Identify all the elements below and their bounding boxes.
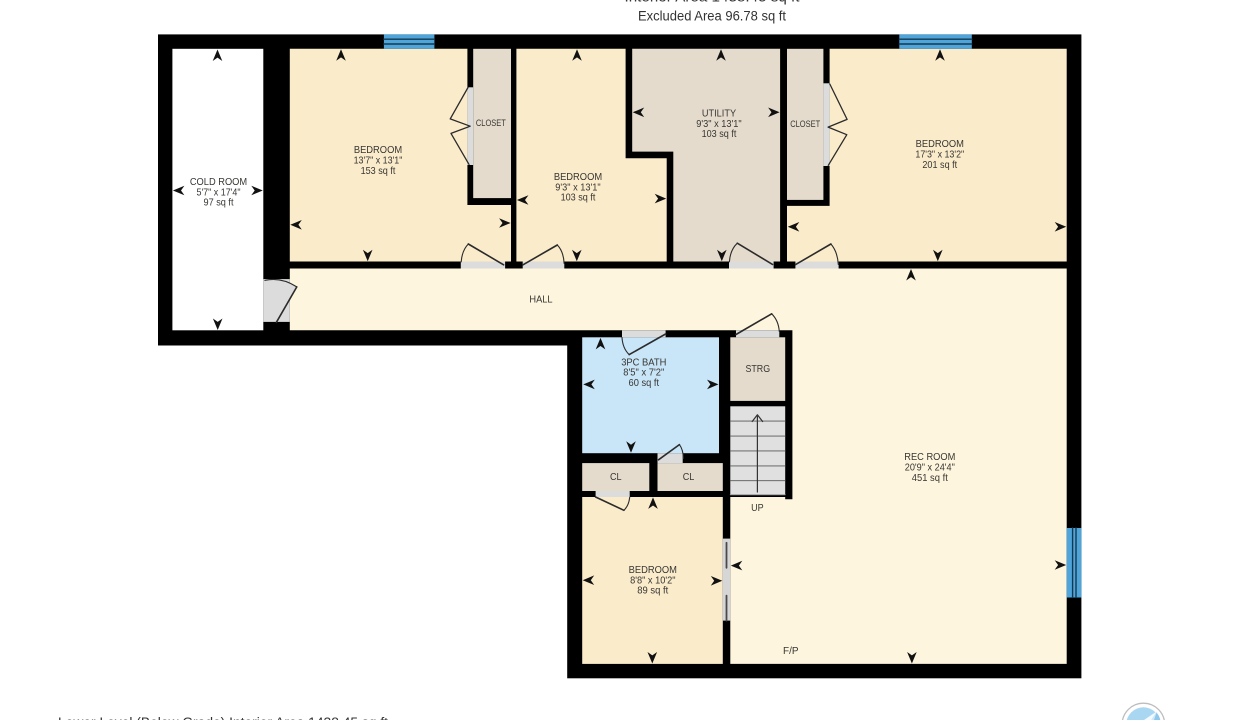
- svg-text:F/P: F/P: [783, 646, 799, 657]
- svg-text:BEDROOM: BEDROOM: [629, 565, 677, 576]
- svg-text:89 sq ft: 89 sq ft: [637, 586, 668, 597]
- svg-text:UP: UP: [751, 503, 764, 514]
- svg-text:REC ROOM: REC ROOM: [904, 452, 955, 463]
- svg-text:201 sq ft: 201 sq ft: [922, 160, 957, 171]
- svg-text:CLOSET: CLOSET: [476, 118, 506, 128]
- svg-text:20'9" x 24'4": 20'9" x 24'4": [905, 463, 955, 474]
- svg-text:UTILITY: UTILITY: [702, 108, 736, 119]
- svg-text:Interior Area 1438.45 sq ft: Interior Area 1438.45 sq ft: [625, 0, 800, 4]
- svg-text:Excluded Area 96.78 sq ft: Excluded Area 96.78 sq ft: [638, 8, 786, 23]
- svg-text:CL: CL: [610, 472, 622, 483]
- svg-text:103 sq ft: 103 sq ft: [702, 129, 737, 140]
- svg-text:60 sq ft: 60 sq ft: [629, 378, 660, 389]
- svg-text:CL: CL: [683, 472, 695, 483]
- svg-text:BEDROOM: BEDROOM: [354, 145, 402, 156]
- svg-text:BEDROOM: BEDROOM: [916, 139, 964, 150]
- svg-text:HALL: HALL: [529, 295, 552, 306]
- svg-text:CLOSET: CLOSET: [790, 119, 820, 129]
- svg-text:STRG: STRG: [745, 364, 770, 375]
- svg-text:97 sq ft: 97 sq ft: [204, 198, 234, 209]
- svg-text:153 sq ft: 153 sq ft: [361, 166, 396, 177]
- svg-text:Lower Level (Below Grade) Inte: Lower Level (Below Grade) Interior Area …: [58, 715, 388, 720]
- svg-text:103 sq ft: 103 sq ft: [561, 193, 596, 204]
- svg-text:451 sq ft: 451 sq ft: [912, 473, 948, 484]
